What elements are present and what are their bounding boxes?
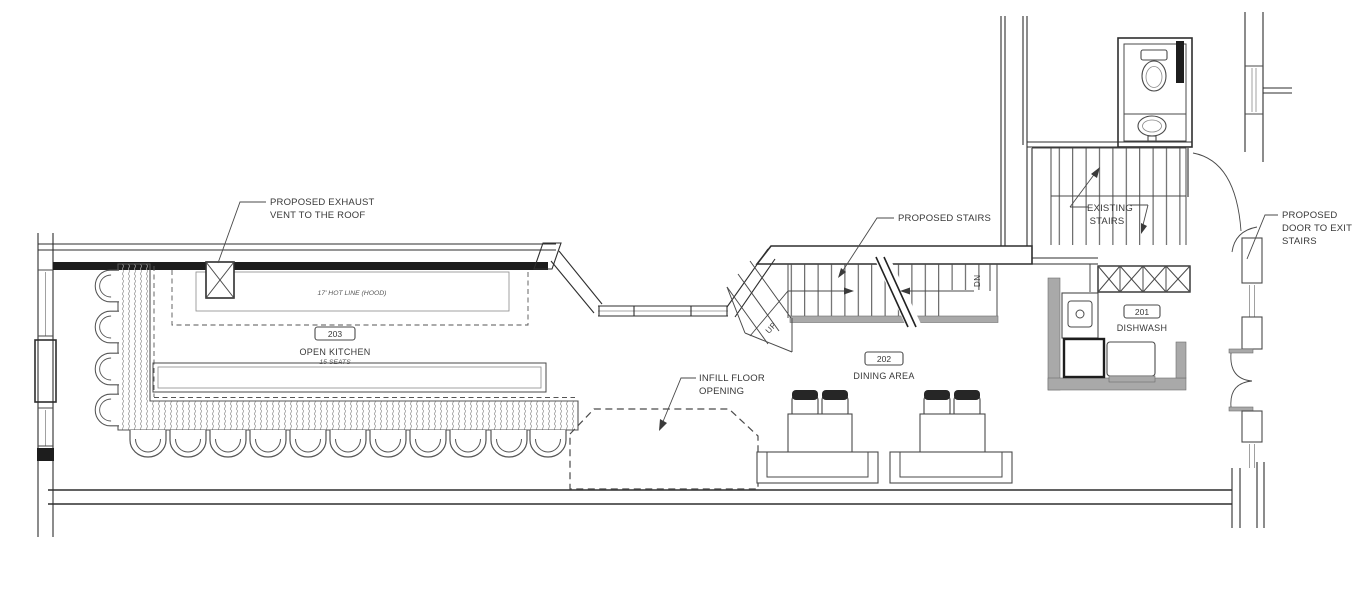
room-number: 202: [877, 354, 891, 364]
room-name: DINING AREA: [853, 371, 914, 381]
dishwasher-unit: [1064, 339, 1104, 377]
annotation-text: DOOR TO EXIT: [1282, 223, 1352, 234]
annotation-text: VENT TO THE ROOF: [270, 210, 365, 221]
annotation-text: PROPOSED STAIRS: [898, 213, 991, 224]
hot-line-label: 17' HOT LINE (HOOD): [318, 290, 387, 297]
dn-label: DN: [973, 274, 982, 287]
banquette-bench: [757, 452, 878, 483]
annotation-text: PROPOSED: [1282, 210, 1337, 221]
restroom-door: [1176, 41, 1184, 83]
stair-treads-lower-run: [788, 290, 948, 318]
wall-pier: [1242, 411, 1262, 442]
crossed-counter: [1098, 266, 1190, 292]
door-hinge-stub: [1229, 407, 1253, 411]
room-number: 203: [328, 329, 342, 339]
annotation-text: EXISTING: [1087, 203, 1133, 214]
dining-table: [788, 414, 852, 455]
wall-pier: [1242, 317, 1262, 349]
annotation-text: PROPOSED EXHAUST: [270, 197, 375, 208]
room-seats: 15 SEATS: [319, 359, 351, 366]
existing-stairs: [1032, 148, 1186, 245]
dishwash-sink: [1062, 293, 1098, 338]
prep-counter: [1107, 342, 1155, 382]
room-name: DISHWASH: [1117, 323, 1168, 333]
stair-edge-shadow: [790, 316, 998, 323]
exhaust-vent-box: [206, 262, 234, 298]
door-hinge-stub: [1229, 349, 1253, 353]
dining-table: [920, 414, 985, 455]
banquette-bench: [890, 452, 1012, 483]
annotation-text: STAIRS: [1282, 236, 1317, 247]
wall-pier: [37, 448, 54, 461]
room-name: OPEN KITCHEN: [299, 347, 370, 357]
toilet: [1141, 50, 1167, 91]
annotation-text: INFILL FLOOR: [699, 373, 765, 384]
wall-pier: [1242, 238, 1262, 283]
annotation-text: OPENING: [699, 386, 744, 397]
service-wall: [1048, 278, 1060, 390]
room-number: 201: [1135, 307, 1149, 317]
annotation-text: STAIRS: [1090, 216, 1125, 227]
floor-plan-svg: UP DN 17' HOT LINE (HOOD): [0, 0, 1363, 610]
floor-plan-page: UP DN 17' HOT LINE (HOOD): [0, 0, 1363, 610]
service-wall: [1176, 342, 1186, 378]
